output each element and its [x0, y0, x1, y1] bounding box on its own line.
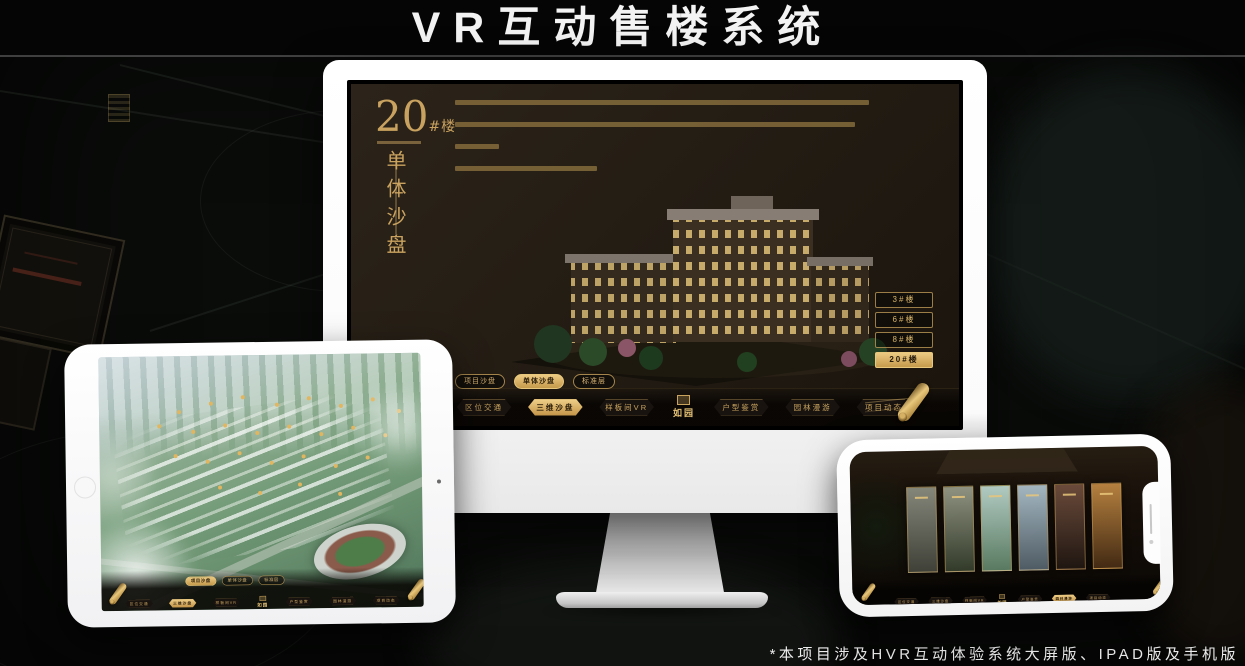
floor-button[interactable]: 20#楼 [875, 352, 933, 368]
background-map-landmark [108, 94, 130, 122]
view-tab-group: 项目沙盘单体沙盘标准层 [185, 575, 284, 586]
nav-item[interactable]: 区位交通 [892, 598, 920, 606]
nav-item[interactable]: 区位交通 [453, 399, 515, 416]
nav-item[interactable]: 如园 [667, 395, 701, 419]
building-headline: 20#楼 单体沙盘 [375, 96, 456, 262]
nav-item[interactable]: 样板间VR [596, 399, 658, 416]
building-number: 20#楼 [375, 96, 456, 138]
nav-item[interactable]: 园林漫游 [782, 399, 844, 416]
background-building-shadow [980, 70, 1245, 400]
phone-speaker [1150, 503, 1153, 533]
promo-canvas: VR互动售楼系统 20#楼 单体沙盘 [0, 0, 1245, 666]
phone-app-screen: 区位交通 三维沙盘 样板间VR 如园 户型鉴赏 [849, 446, 1160, 605]
nav-item[interactable]: 户型鉴赏 [1016, 595, 1044, 603]
page-title: VR互动售楼系统 [0, 2, 1245, 54]
nav-item[interactable]: 三维沙盘 [167, 599, 198, 608]
gallery-panel[interactable] [1054, 483, 1086, 570]
phone-camera-icon [1149, 539, 1153, 543]
view-tab[interactable]: 项目沙盘 [455, 374, 505, 389]
background-certificate-plaque [0, 214, 125, 359]
floor-button[interactable]: 8#楼 [875, 332, 933, 348]
phone-notch [1142, 481, 1161, 563]
intro-text-line [455, 122, 855, 127]
plaque-inner-frame [0, 227, 112, 346]
scroll-rod [1152, 576, 1161, 596]
gallery-panel[interactable] [980, 485, 1012, 572]
view-tab[interactable]: 单体沙盘 [514, 374, 564, 389]
intro-text-line [455, 100, 869, 105]
main-nav: 区位交通 三维沙盘 样板间VR 如园 户型鉴赏 [451, 392, 917, 422]
background-certificate-plaque-2 [0, 333, 52, 431]
monitor-stand-neck [595, 510, 725, 598]
background-photo-edge [0, 55, 1245, 57]
floor-button-group: 3#楼6#楼8#楼20#楼 [875, 292, 933, 368]
gallery-panel[interactable] [906, 486, 938, 573]
view-tab[interactable]: 标准层 [573, 374, 615, 389]
brand-seal-icon [999, 594, 1005, 599]
nav-item[interactable]: 户型鉴赏 [284, 597, 315, 606]
monitor-stand-base [556, 592, 768, 608]
building-render [501, 162, 901, 390]
scroll-handle-icon[interactable] [105, 581, 133, 607]
scroll-handle-icon[interactable] [404, 577, 424, 603]
brand-seal-icon [677, 395, 690, 405]
view-tab[interactable]: 项目沙盘 [185, 576, 216, 586]
tablet-camera-icon [437, 479, 441, 483]
view-tab[interactable]: 单体沙盘 [222, 576, 253, 586]
tablet-device: 项目沙盘单体沙盘标准层 区位交通 三维沙盘 样板间VR 如园 [64, 339, 456, 627]
gallery-panel[interactable] [1091, 483, 1123, 570]
intro-text-line [455, 144, 499, 149]
nav-item[interactable]: 三维沙盘 [524, 399, 586, 416]
building-number-markers [157, 424, 161, 428]
nav-item[interactable]: 如园 [254, 596, 271, 608]
nav-item[interactable]: 样板间VR [961, 596, 989, 604]
interior-ceiling-beam [936, 447, 1078, 474]
nav-item[interactable]: 户型鉴赏 [710, 399, 772, 416]
nav-item[interactable]: 项目动态 [1084, 594, 1112, 602]
nav-item[interactable]: 三维沙盘 [927, 597, 955, 605]
view-tab[interactable]: 标准层 [258, 575, 284, 585]
tablet-home-button[interactable] [74, 476, 96, 498]
floor-button[interactable]: 3#楼 [875, 292, 933, 308]
gallery-panel[interactable] [1017, 484, 1049, 571]
gallery-panel[interactable] [943, 486, 975, 573]
floor-button[interactable]: 6#楼 [875, 312, 933, 328]
nav-item[interactable]: 园林漫游 [327, 596, 358, 605]
scene-gallery [906, 483, 1123, 573]
phone-device: 区位交通 三维沙盘 样板间VR 如园 户型鉴赏 [836, 434, 1174, 618]
scroll-rod [108, 582, 128, 606]
footnote: *本项目涉及HVR互动体验系统大屏版、IPAD版及手机版 [770, 643, 1239, 664]
scroll-rod [860, 582, 876, 602]
nav-item[interactable]: 园林漫游 [1050, 594, 1078, 602]
tablet-app-screen: 项目沙盘单体沙盘标准层 区位交通 三维沙盘 样板间VR 如园 [98, 353, 424, 611]
view-tab-group: 项目沙盘单体沙盘标准层 [455, 374, 615, 389]
scroll-handle-icon[interactable] [858, 582, 881, 603]
scroll-handle-icon[interactable] [1150, 576, 1161, 597]
scroll-rod [406, 578, 423, 602]
nav-item[interactable]: 项目动态 [371, 596, 402, 605]
nav-item[interactable]: 如园 [995, 594, 1011, 605]
headline-side-rule [395, 156, 397, 234]
headline-english-caption [377, 141, 421, 144]
brand-seal-icon [259, 596, 266, 601]
nav-item[interactable]: 样板间VR [211, 598, 242, 607]
scroll-handle-icon[interactable] [891, 380, 941, 426]
